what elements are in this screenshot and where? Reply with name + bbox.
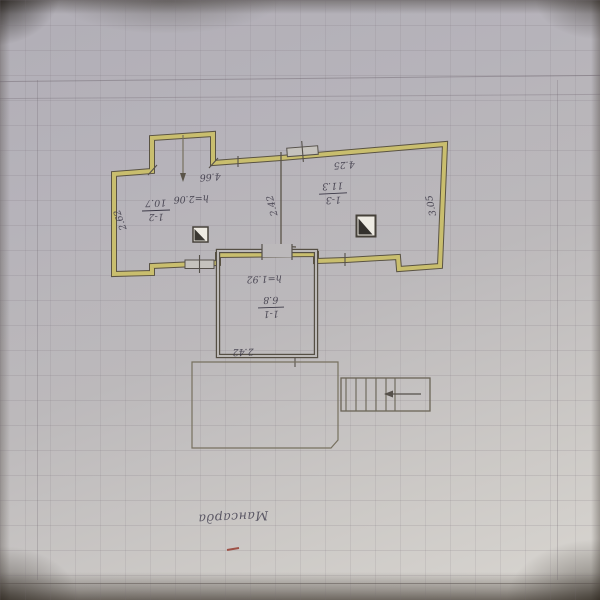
dim-room13-width: 4.25 <box>333 158 356 171</box>
red-check-mark <box>227 548 239 550</box>
partition-wall <box>281 152 296 247</box>
stair-direction-arrow-icon <box>384 391 421 398</box>
door-opening <box>262 244 292 257</box>
dim-room11-width: 2.42 <box>232 346 255 358</box>
stove-icon-room-1-3 <box>357 216 376 237</box>
room-1-3-area: 11.3 <box>322 179 344 191</box>
room-1-2-height-label: h=2.06 <box>173 192 209 205</box>
room-1-1-number: 1-1 <box>263 308 279 320</box>
floor-title-label: Мансарда <box>198 508 270 527</box>
dim-room13-right-wall: 3.05 <box>424 194 439 217</box>
roof-outline <box>192 362 338 448</box>
dormer-arrow-icon <box>180 135 186 182</box>
floorplan-svg: 4.66 h=2.06 1-2 10.7 2.62 4.25 1-3 11.3 … <box>0 0 600 600</box>
room-1-1-label: 1-1 6.8 <box>258 294 285 320</box>
room-1-2-label: 1-2 10.7 <box>142 197 171 223</box>
room-1-3-number: 1-3 <box>325 194 341 206</box>
stove-icon-room-1-2 <box>193 227 208 242</box>
window-icon-bottom <box>185 255 214 273</box>
room-1-2-number: 1-2 <box>148 211 164 223</box>
room-1-3-label: 1-3 11.3 <box>318 179 347 205</box>
room-1-1-area: 6.8 <box>263 294 278 306</box>
room-1-1-height-label: h=1.92 <box>246 272 282 284</box>
room-1-2-area: 10.7 <box>144 197 166 209</box>
photo-background: 4.66 h=2.06 1-2 10.7 2.62 4.25 1-3 11.3 … <box>0 0 600 600</box>
staircase <box>341 378 430 411</box>
dim-room12-width: 4.66 <box>199 170 222 183</box>
dim-rooms-depth: 2.42 <box>265 194 281 218</box>
